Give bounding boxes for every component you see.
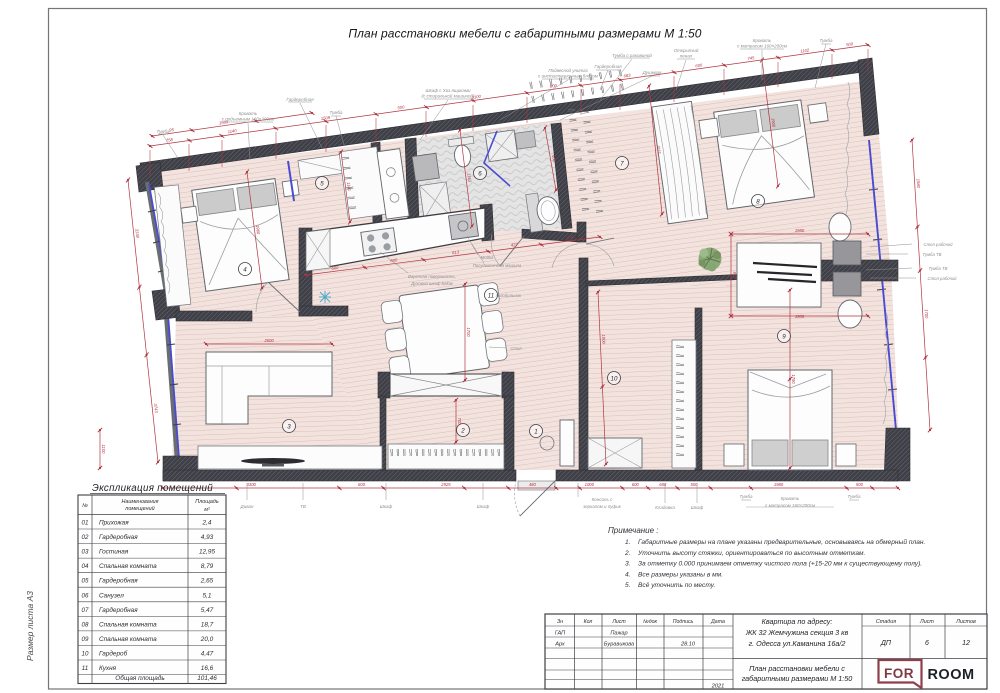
- svg-text:4,47: 4,47: [201, 650, 214, 657]
- svg-text:2,4: 2,4: [202, 520, 212, 527]
- svg-text:Тумба: Тумба: [820, 38, 833, 43]
- svg-text:6: 6: [478, 170, 482, 177]
- svg-text:10: 10: [82, 650, 89, 657]
- svg-text:Дата: Дата: [710, 619, 725, 625]
- svg-text:1790: 1790: [791, 374, 796, 384]
- svg-text:3300: 3300: [247, 482, 257, 487]
- svg-text:Все размеры указаны в мм.: Все размеры указаны в мм.: [638, 571, 723, 578]
- svg-text:Габаритные размеры на плане ук: Габаритные размеры на плане указаны пред…: [638, 538, 925, 546]
- svg-text:Спальная комната: Спальная комната: [99, 636, 157, 643]
- svg-text:Санузел: Санузел: [99, 592, 124, 599]
- svg-text:600: 600: [632, 482, 640, 487]
- svg-text:1: 1: [534, 428, 537, 435]
- svg-text:помещений: помещений: [125, 505, 154, 512]
- svg-text:Диван: Диван: [240, 504, 254, 509]
- svg-text:Подпись: Подпись: [673, 619, 694, 625]
- svg-text:Кровать: Кровать: [781, 496, 800, 501]
- svg-text:За отметку 0.000 принимаем отм: За отметку 0.000 принимаем отметку чисто…: [638, 561, 922, 568]
- svg-text:975: 975: [732, 272, 737, 280]
- svg-text:875: 875: [566, 235, 574, 241]
- svg-text:4,93: 4,93: [201, 534, 214, 541]
- svg-text:№: №: [82, 503, 88, 509]
- svg-text:3111: 3111: [656, 145, 662, 154]
- svg-text:Кол: Кол: [584, 619, 593, 625]
- svg-text:Тумба с раковиной: Тумба с раковиной: [612, 52, 652, 58]
- svg-text:02: 02: [82, 534, 89, 541]
- svg-text:09: 09: [82, 636, 89, 643]
- svg-text:11: 11: [82, 665, 88, 672]
- svg-text:ДП: ДП: [880, 640, 892, 647]
- svg-text:01: 01: [82, 520, 89, 527]
- svg-text:Шкаф: Шкаф: [691, 505, 704, 510]
- svg-text:Кровать: Кровать: [239, 111, 258, 116]
- svg-text:1980: 1980: [774, 482, 784, 487]
- svg-text:Размер листа А3: Размер листа А3: [25, 591, 35, 661]
- svg-text:1980: 1980: [795, 228, 805, 233]
- svg-text:04: 04: [82, 563, 89, 570]
- svg-text:Кладовка: Кладовка: [655, 505, 675, 510]
- svg-text:9: 9: [782, 333, 786, 340]
- svg-text:Гардеробная: Гардеробная: [99, 533, 138, 541]
- svg-text:7: 7: [620, 160, 624, 167]
- svg-text:2,65: 2,65: [200, 578, 214, 585]
- svg-text:Общая площадь: Общая площадь: [115, 674, 164, 682]
- svg-text:07: 07: [82, 607, 89, 614]
- svg-text:Стол: Стол: [510, 346, 522, 351]
- svg-text:1000: 1000: [585, 482, 595, 487]
- svg-text:12: 12: [962, 640, 970, 647]
- svg-text:Стадия: Стадия: [876, 619, 896, 625]
- svg-text:600: 600: [550, 83, 558, 89]
- svg-text:4: 4: [243, 266, 247, 273]
- svg-text:1700: 1700: [924, 309, 930, 319]
- svg-text:3138: 3138: [134, 228, 140, 238]
- svg-text:Площадь: Площадь: [195, 499, 219, 505]
- svg-text:Гардеробная: Гардеробная: [594, 64, 622, 69]
- svg-text:8: 8: [756, 198, 760, 205]
- svg-text:28.10: 28.10: [680, 642, 696, 648]
- svg-text:Тумба: Тумба: [330, 110, 343, 115]
- svg-text:с матрасом 160×200см: с матрасом 160×200см: [737, 44, 787, 49]
- svg-text:Листов: Листов: [955, 619, 976, 625]
- svg-text:18,7: 18,7: [201, 621, 214, 628]
- svg-text:05: 05: [82, 578, 89, 585]
- svg-text:1980: 1980: [916, 178, 922, 188]
- svg-text:Наименования: Наименования: [121, 499, 158, 505]
- svg-text:3: 3: [287, 423, 291, 430]
- svg-text:2925: 2925: [440, 482, 451, 487]
- svg-text:ЖК 32 Жемчужина секция 3 кв: ЖК 32 Жемчужина секция 3 кв: [745, 628, 849, 637]
- svg-text:12,95: 12,95: [199, 549, 215, 556]
- svg-text:16,6: 16,6: [201, 665, 214, 672]
- svg-text:1000: 1000: [601, 334, 606, 344]
- svg-text:габаритными размерами М 1:50: габаритными размерами М 1:50: [742, 674, 853, 683]
- svg-text:Кухня: Кухня: [99, 665, 117, 672]
- svg-text:г. Одесса ул.Каманина 16а/2: г. Одесса ул.Каманина 16а/2: [749, 639, 846, 648]
- svg-text:Гардеробная: Гардеробная: [286, 97, 314, 102]
- svg-text:600: 600: [695, 62, 703, 68]
- svg-text:Пажар: Пажар: [610, 631, 627, 637]
- svg-text:Холодильник: Холодильник: [494, 293, 522, 298]
- svg-text:Стол рабочий: Стол рабочий: [928, 276, 958, 281]
- svg-text:Кровать: Кровать: [753, 38, 772, 43]
- svg-text:зеркалом и пуфик: зеркалом и пуфик: [582, 504, 622, 509]
- svg-text:Квартира по адресу:: Квартира по адресу:: [762, 617, 833, 626]
- svg-text:2.: 2.: [624, 550, 631, 557]
- svg-text:101,46: 101,46: [197, 675, 217, 682]
- svg-text:03: 03: [82, 549, 89, 556]
- svg-text:5,1: 5,1: [203, 592, 212, 599]
- svg-text:Экспликация помещений: Экспликация помещений: [92, 483, 213, 494]
- svg-text:500: 500: [846, 41, 854, 47]
- svg-text:Лист: Лист: [611, 619, 626, 625]
- svg-text:Тумба ТВ: Тумба ТВ: [928, 266, 947, 271]
- svg-text:FOR: FOR: [884, 666, 914, 681]
- svg-text:Спальная комната: Спальная комната: [99, 621, 157, 628]
- svg-text:ТВ: ТВ: [300, 504, 306, 509]
- svg-text:745: 745: [747, 55, 755, 61]
- svg-text:500: 500: [397, 104, 405, 110]
- svg-text:Варочная поверхность,: Варочная поверхность,: [408, 274, 456, 279]
- svg-text:(с стиральной машиной): (с стиральной машиной): [422, 93, 475, 99]
- svg-text:Спальная комната: Спальная комната: [99, 563, 157, 570]
- svg-text:м²: м²: [204, 507, 210, 513]
- svg-text:ГАП: ГАП: [555, 631, 566, 637]
- svg-text:Примечание :: Примечание :: [608, 526, 659, 535]
- svg-text:5.: 5.: [625, 582, 631, 589]
- svg-text:Шкаф с Хоз.ящиками: Шкаф с Хоз.ящиками: [426, 88, 471, 93]
- svg-text:5: 5: [320, 180, 324, 187]
- svg-text:6: 6: [925, 640, 929, 647]
- svg-text:Консоль с: Консоль с: [592, 497, 613, 502]
- svg-text:600: 600: [331, 265, 339, 271]
- svg-text:688: 688: [659, 482, 667, 487]
- svg-text:10: 10: [611, 375, 618, 382]
- svg-text:1100: 1100: [101, 444, 106, 454]
- svg-text:500: 500: [856, 482, 864, 487]
- svg-text:3743: 3743: [153, 403, 159, 413]
- svg-text:600: 600: [358, 482, 366, 487]
- svg-text:20,0: 20,0: [200, 636, 214, 643]
- svg-text:Душевая: Душевая: [642, 70, 662, 75]
- svg-text:ROOM: ROOM: [927, 667, 974, 683]
- svg-text:4.: 4.: [625, 571, 631, 578]
- svg-text:Гостиная: Гостиная: [99, 549, 129, 556]
- svg-text:2600: 2600: [263, 338, 274, 343]
- svg-text:Всё уточнить по месту.: Всё уточнить по месту.: [638, 582, 716, 589]
- svg-text:Тумба ТВ: Тумба ТВ: [922, 252, 941, 257]
- svg-text:Зн: Зн: [557, 619, 563, 625]
- svg-text:Буравикова: Буравикова: [604, 642, 634, 648]
- svg-text:Лист: Лист: [919, 619, 934, 625]
- svg-text:3.: 3.: [625, 561, 631, 568]
- svg-text:Открытый: Открытый: [674, 47, 699, 53]
- svg-text:758: 758: [165, 137, 173, 143]
- svg-text:11: 11: [488, 292, 494, 299]
- svg-text:Тумба: Тумба: [157, 129, 170, 134]
- svg-text:План расстановки мебели с: План расстановки мебели с: [749, 664, 845, 673]
- svg-text:Духовой шкаф below: Духовой шкаф below: [410, 281, 454, 286]
- svg-text:Тумба: Тумба: [848, 494, 861, 499]
- svg-text:Стол рабочий: Стол рабочий: [924, 242, 954, 247]
- svg-text:Уточнить высоту стяжки, ориент: Уточнить высоту стяжки, ориентироваться …: [637, 550, 866, 557]
- svg-text:8,79: 8,79: [201, 563, 214, 570]
- svg-text:№док: №док: [643, 619, 657, 625]
- svg-text:Тумба: Тумба: [740, 494, 753, 499]
- svg-text:Шкаф: Шкаф: [380, 504, 393, 509]
- svg-text:пенал: пенал: [680, 54, 693, 59]
- svg-text:Гардеробная: Гардеробная: [99, 577, 138, 585]
- svg-text:1700: 1700: [466, 327, 471, 337]
- svg-text:Посудомоечная машина: Посудомоечная машина: [473, 263, 522, 268]
- svg-text:Арх: Арх: [554, 642, 565, 648]
- svg-text:с инсталляционным блоком: с инсталляционным блоком: [538, 74, 598, 79]
- svg-text:2: 2: [460, 427, 465, 434]
- svg-text:2021: 2021: [711, 684, 724, 690]
- svg-text:613: 613: [452, 249, 460, 255]
- svg-text:1980: 1980: [795, 314, 805, 319]
- svg-text:Прихожая: Прихожая: [99, 520, 129, 527]
- svg-text:Шкаф: Шкаф: [477, 504, 490, 509]
- svg-text:06: 06: [82, 592, 89, 599]
- svg-text:480: 480: [529, 482, 537, 487]
- svg-text:План расстановки мебели с габа: План расстановки мебели с габаритными ра…: [348, 27, 701, 41]
- svg-text:Мойка: Мойка: [481, 255, 494, 260]
- svg-text:683: 683: [623, 73, 631, 79]
- svg-text:Гардеробная: Гардеробная: [99, 606, 138, 614]
- svg-text:с матрасом 160×200см: с матрасом 160×200см: [765, 503, 815, 508]
- svg-text:427: 427: [511, 242, 519, 248]
- svg-text:Подвесной унитаз: Подвесной унитаз: [548, 67, 587, 73]
- svg-text:с подъемным 160×200см: с подъемным 160×200см: [222, 117, 274, 122]
- svg-text:5,47: 5,47: [201, 607, 214, 614]
- svg-text:Гардероб: Гардероб: [99, 649, 128, 657]
- svg-text:08: 08: [82, 621, 89, 628]
- svg-text:1.: 1.: [625, 539, 631, 546]
